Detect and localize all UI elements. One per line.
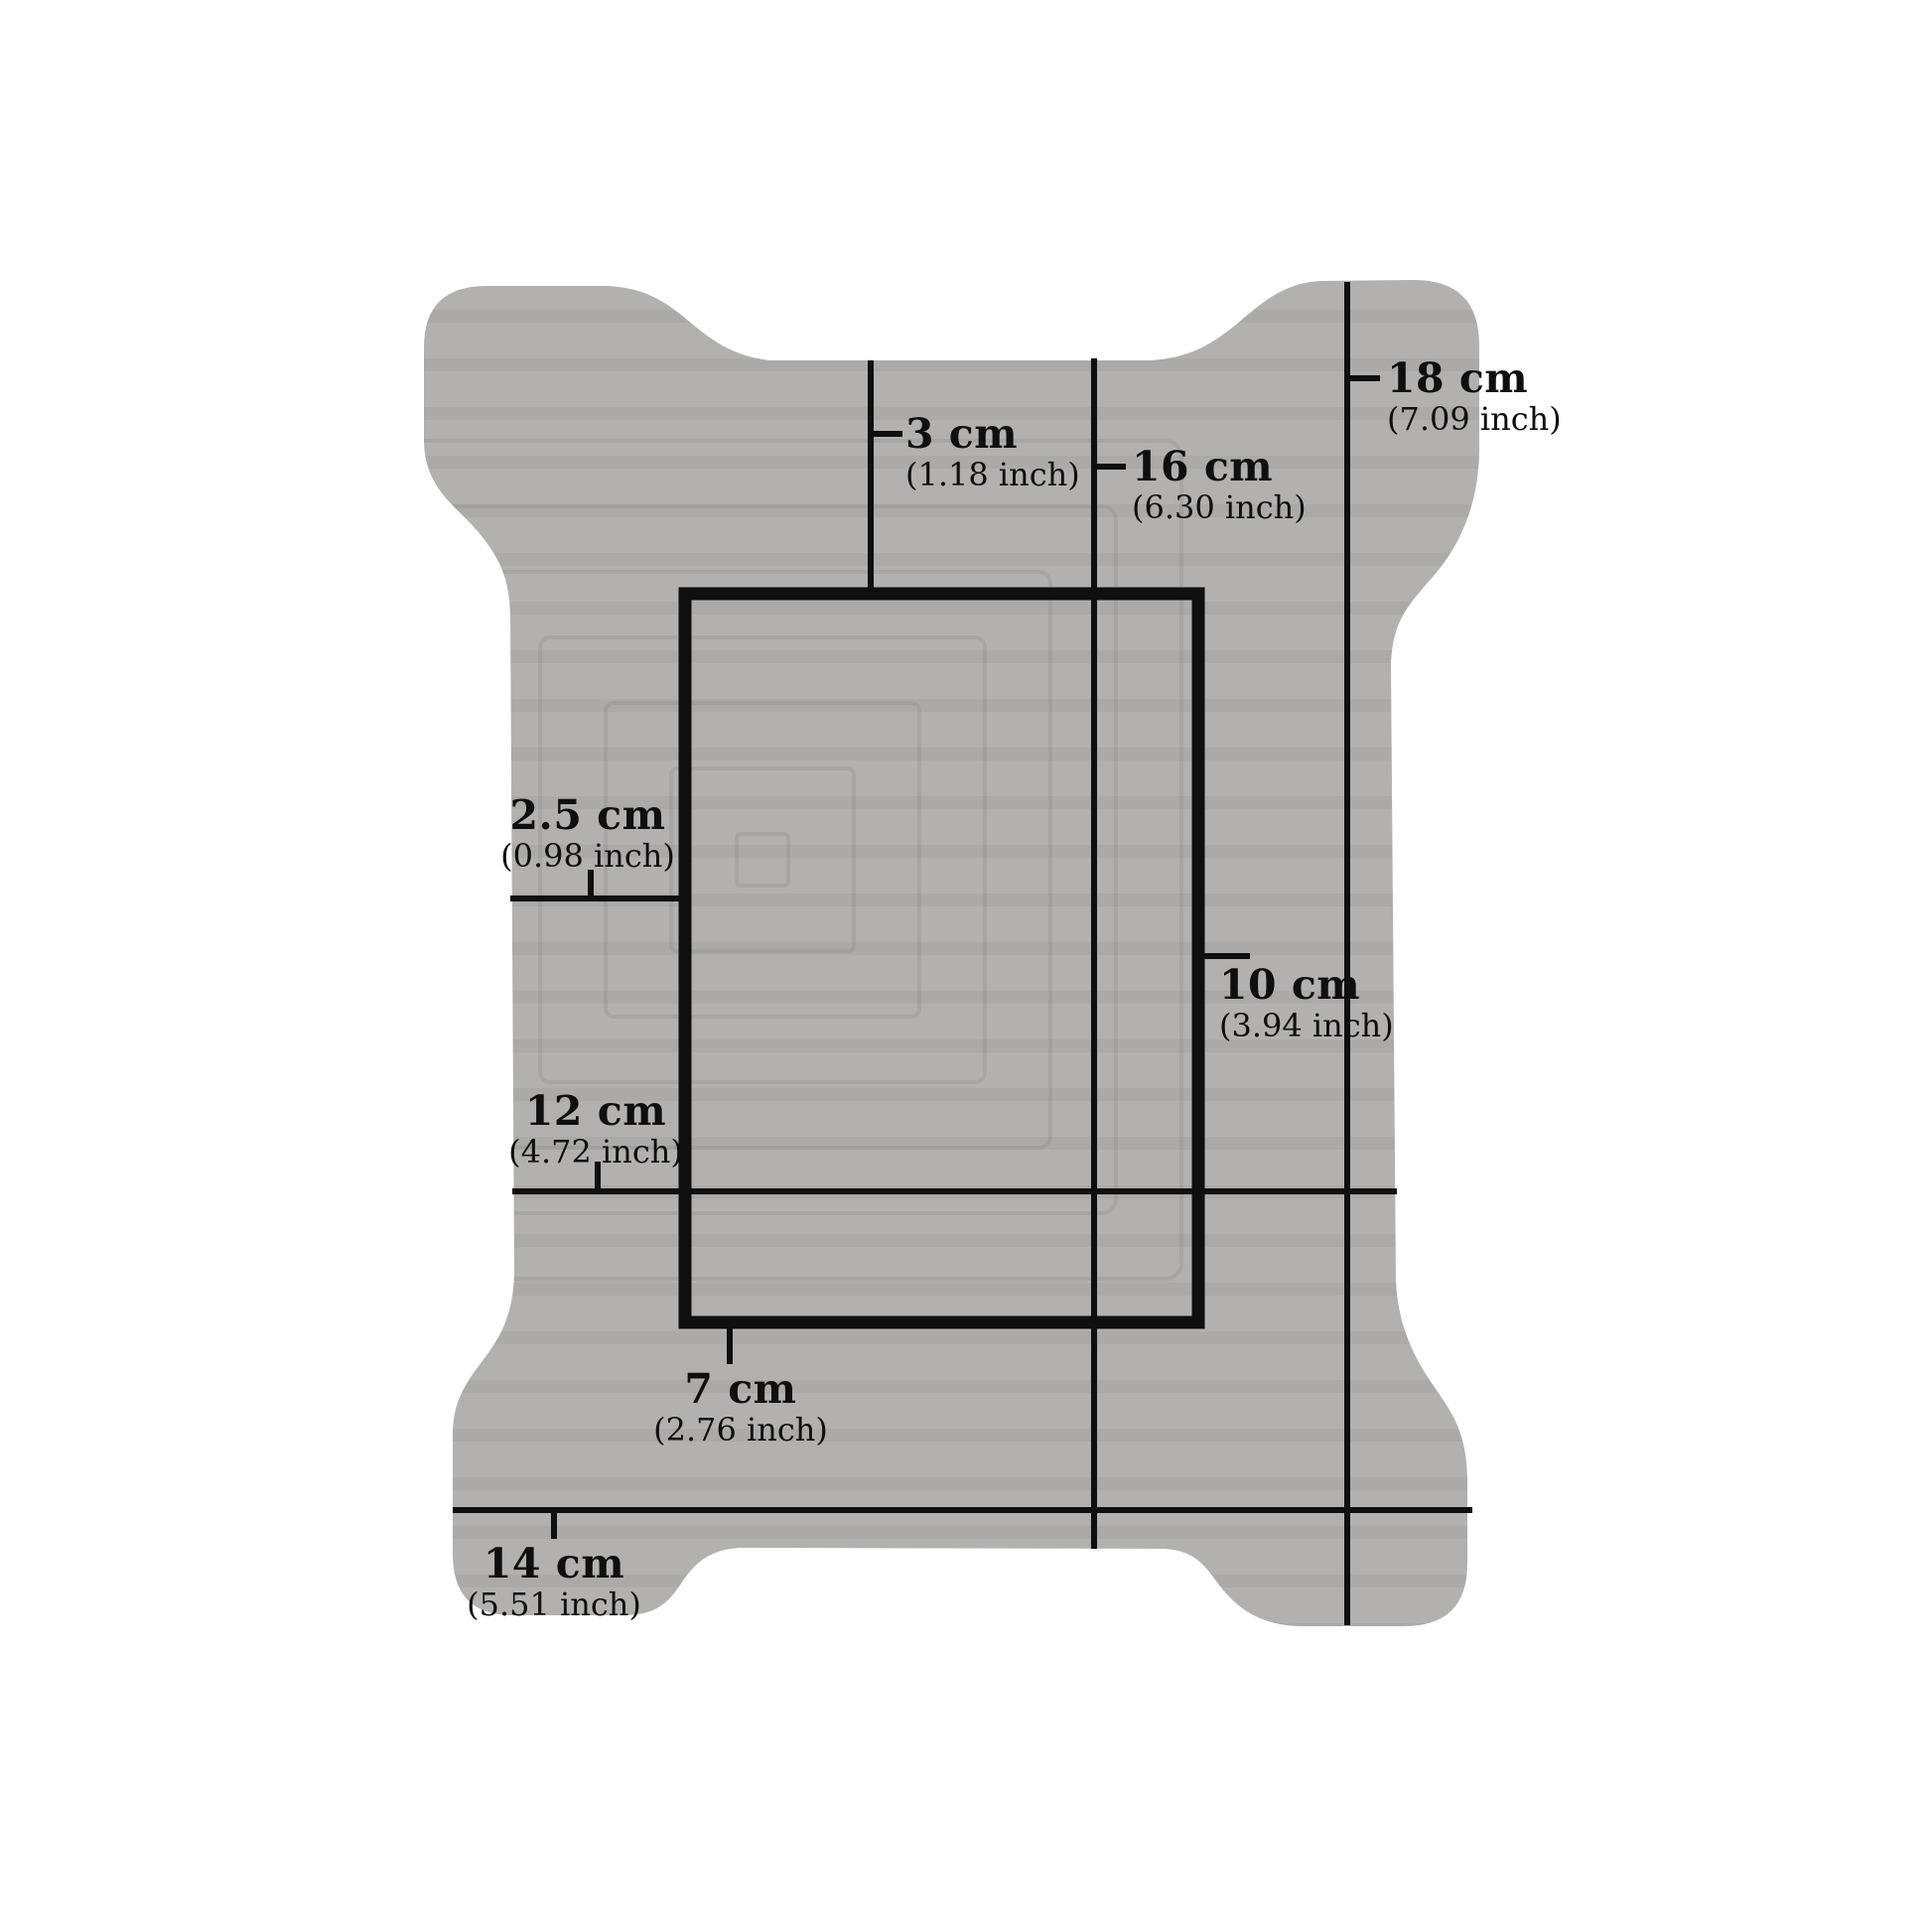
dim-body-width-inch: (4.72 inch) bbox=[508, 1133, 683, 1171]
dim-top-margin-inch: (1.18 inch) bbox=[905, 456, 1080, 493]
dim-total-width-value: 14 cm bbox=[467, 1542, 641, 1586]
dim-body-width-value: 12 cm bbox=[508, 1089, 683, 1133]
dim-left-margin-inch: (0.98 inch) bbox=[500, 837, 675, 875]
diagram-canvas bbox=[0, 0, 1932, 1932]
dim-total-height-label: 18 cm (7.09 inch) bbox=[1387, 356, 1562, 438]
dim-window-width-inch: (2.76 inch) bbox=[653, 1411, 828, 1449]
dim-total-width-label: 14 cm (5.51 inch) bbox=[467, 1542, 641, 1623]
dimension-diagram: 3 cm (1.18 inch) 16 cm (6.30 inch) 18 cm… bbox=[0, 0, 1932, 1932]
dim-total-height-value: 18 cm bbox=[1387, 356, 1562, 400]
dim-top-margin-label: 3 cm (1.18 inch) bbox=[905, 412, 1080, 493]
dim-top-margin-value: 3 cm bbox=[905, 412, 1080, 456]
dim-body-height-value: 16 cm bbox=[1132, 445, 1307, 488]
dim-window-height-label: 10 cm (3.94 inch) bbox=[1219, 963, 1394, 1044]
dim-total-width-inch: (5.51 inch) bbox=[467, 1586, 641, 1623]
dim-window-width-value: 7 cm bbox=[653, 1367, 828, 1411]
dim-window-width-label: 7 cm (2.76 inch) bbox=[653, 1367, 828, 1449]
dim-body-width-label: 12 cm (4.72 inch) bbox=[508, 1089, 683, 1171]
dim-left-margin-value: 2.5 cm bbox=[500, 793, 675, 837]
dim-left-margin-label: 2.5 cm (0.98 inch) bbox=[500, 793, 675, 875]
dim-body-height-inch: (6.30 inch) bbox=[1132, 488, 1307, 526]
dim-window-height-value: 10 cm bbox=[1219, 963, 1394, 1007]
dim-total-height-inch: (7.09 inch) bbox=[1387, 400, 1562, 438]
dim-window-height-inch: (3.94 inch) bbox=[1219, 1007, 1394, 1044]
dim-body-height-label: 16 cm (6.30 inch) bbox=[1132, 445, 1307, 526]
